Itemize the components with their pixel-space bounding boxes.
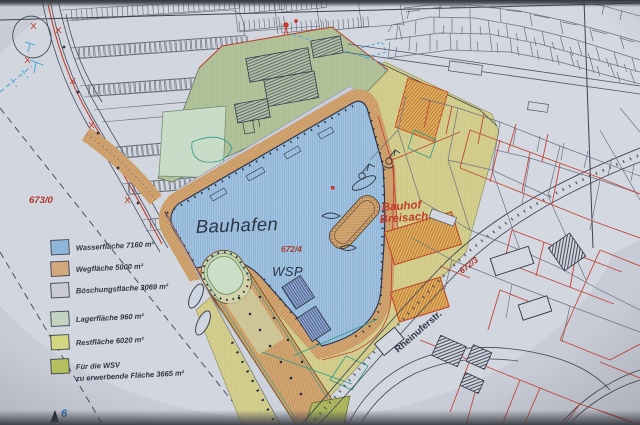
svg-text:6: 6 [61, 408, 68, 420]
svg-text:Bauhafen: Bauhafen [195, 213, 278, 237]
svg-text:WSP: WSP [272, 264, 303, 279]
svg-text:673/0: 673/0 [29, 195, 53, 206]
svg-text:672/4: 672/4 [281, 244, 302, 254]
